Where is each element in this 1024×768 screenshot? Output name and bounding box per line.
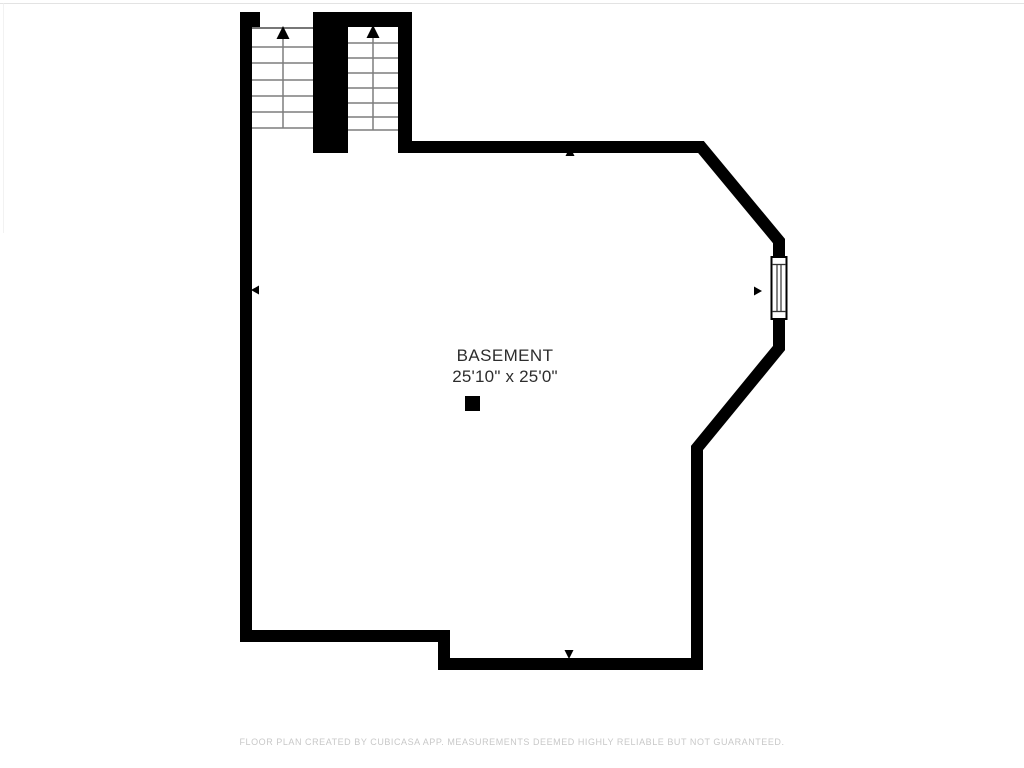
- floor-plan-page: BASEMENT 25'10" x 25'0" FLOOR PLAN CREAT…: [0, 0, 1024, 768]
- room-dimensions: 25'10" x 25'0": [394, 366, 616, 388]
- column-post: [465, 396, 480, 411]
- wall-stair-top-left-stub: [240, 12, 260, 27]
- stairs-left-flight: [252, 26, 313, 128]
- measure-marker-east-icon: [754, 287, 762, 296]
- measure-marker-west-icon: [251, 286, 259, 295]
- wall-stair-middle: [313, 12, 348, 153]
- room-name: BASEMENT: [394, 346, 616, 366]
- measure-marker-south-icon: [565, 650, 574, 659]
- room-label: BASEMENT 25'10" x 25'0": [394, 346, 616, 388]
- wall-stair-right: [398, 12, 412, 153]
- window-symbol: [772, 257, 787, 319]
- window-frame: [772, 257, 787, 319]
- footer-disclaimer: FLOOR PLAN CREATED BY CUBICASA APP. MEAS…: [0, 737, 1024, 747]
- stairs-right-flight: [348, 25, 398, 130]
